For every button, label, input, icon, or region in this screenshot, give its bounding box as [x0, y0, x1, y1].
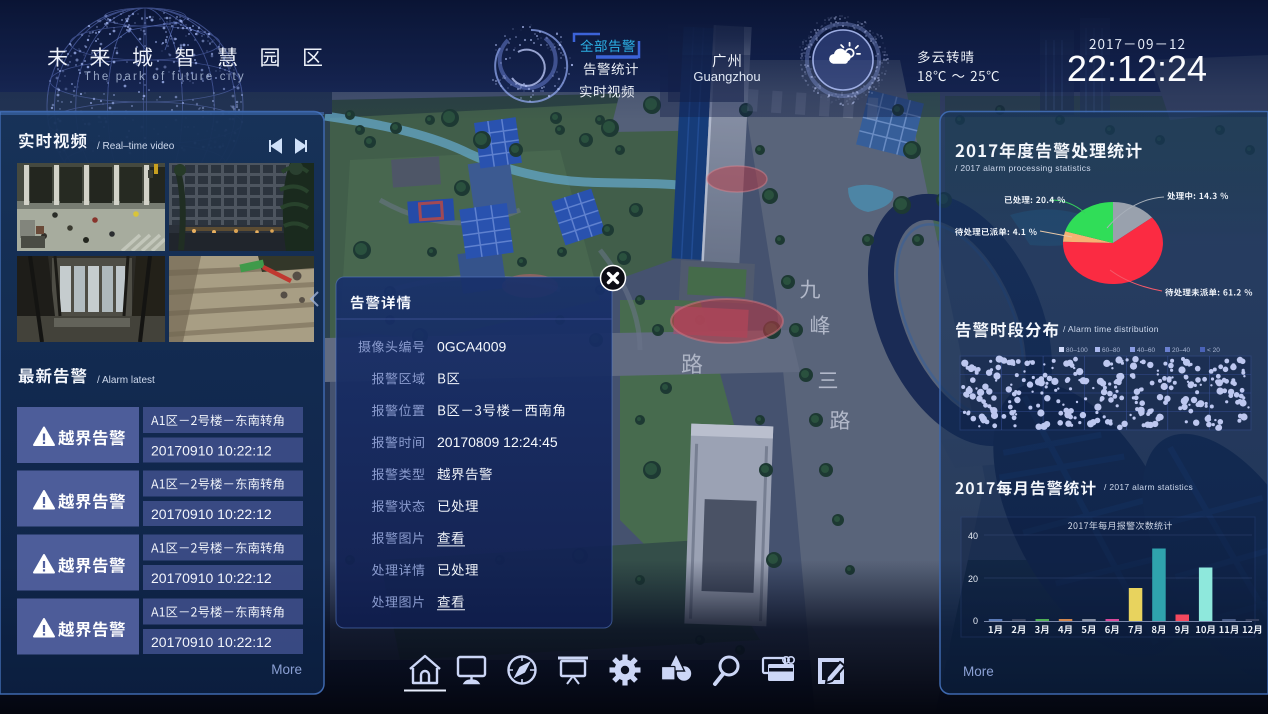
svg-text:40–60: 40–60: [1137, 347, 1155, 354]
svg-text:22:12:24: 22:12:24: [1067, 48, 1207, 89]
svg-text:Guangzhou: Guangzhou: [693, 69, 760, 84]
svg-text:20170809 12:24:45: 20170809 12:24:45: [437, 434, 558, 450]
svg-text:More: More: [271, 662, 302, 677]
svg-text:60–80: 60–80: [1102, 347, 1120, 354]
svg-text:/ 2017 alarm processing statis: / 2017 alarm processing statistics: [955, 163, 1091, 173]
svg-text:0: 0: [973, 616, 978, 626]
svg-text:20: 20: [968, 574, 978, 584]
svg-text:/ Alarm time distribution: / Alarm time distribution: [1063, 324, 1159, 334]
svg-text:/ Alarm latest: / Alarm latest: [97, 375, 155, 386]
svg-text:80–100: 80–100: [1066, 347, 1088, 354]
svg-text:< 20: < 20: [1207, 347, 1220, 354]
svg-text:0GCA4009: 0GCA4009: [437, 339, 506, 355]
svg-text:20170910 10:22:12: 20170910 10:22:12: [151, 570, 272, 586]
svg-text:20170910 10:22:12: 20170910 10:22:12: [151, 634, 272, 650]
svg-text:40: 40: [968, 531, 978, 541]
svg-text:20–40: 20–40: [1172, 347, 1190, 354]
svg-text:More: More: [963, 664, 994, 679]
svg-text:The park of future city: The park of future city: [84, 71, 246, 83]
svg-text:/ Real–time video: / Real–time video: [97, 141, 175, 152]
svg-text:20170910 10:22:12: 20170910 10:22:12: [151, 443, 272, 459]
svg-text:20170910 10:22:12: 20170910 10:22:12: [151, 506, 272, 522]
svg-text:/ 2017 alarm statistics: / 2017 alarm statistics: [1104, 482, 1193, 492]
